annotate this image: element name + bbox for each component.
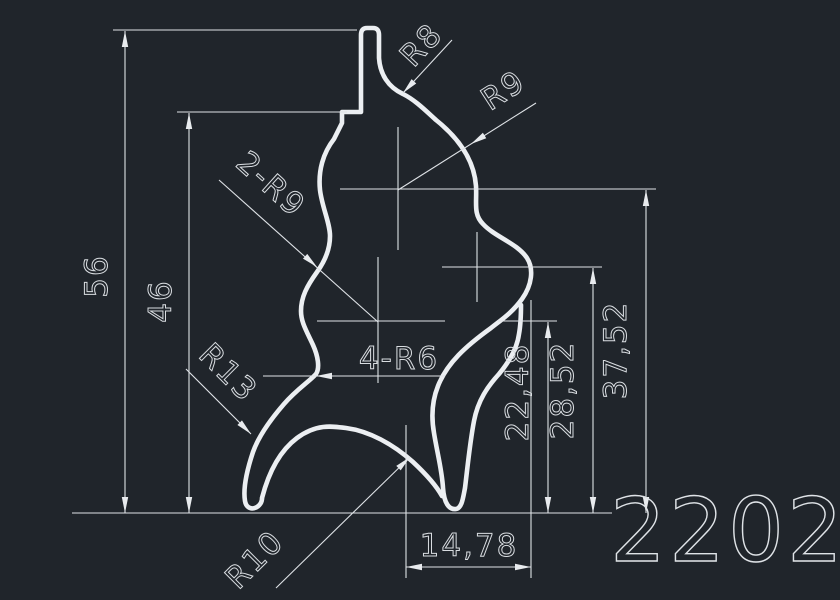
- arrow-37-52-top: [643, 190, 649, 206]
- leader-r8: R8: [393, 16, 452, 95]
- radius-label-r8: R8: [393, 16, 450, 74]
- leader-4-r6: 4-R6: [263, 341, 445, 379]
- radius-label-r13: R13: [192, 337, 265, 410]
- profile-arch: [262, 427, 442, 498]
- arrow-46-top: [186, 113, 192, 129]
- dim-label-37-52: 37,52: [598, 301, 634, 400]
- arrow-r13: [237, 420, 253, 436]
- leader-r13: R13: [186, 337, 264, 437]
- cad-drawing-canvas: 56 46 37,52 28,52 22,48 1: [0, 0, 840, 600]
- dim-label-56: 56: [79, 254, 115, 297]
- leader-2-r9: 2-R9: [219, 144, 378, 322]
- radius-label-r10: R10: [219, 524, 292, 597]
- leader-line-r10: [276, 457, 410, 588]
- arrow-r9: [469, 133, 486, 147]
- radius-label-4-r6: 4-R6: [359, 341, 439, 377]
- arrow-56-bottom: [122, 497, 128, 513]
- dim-label-14-78: 14,78: [420, 528, 519, 564]
- dim-label-28-52: 28,52: [545, 341, 581, 440]
- arrow-28-52-bottom: [590, 497, 596, 513]
- arrow-22-48-top: [545, 322, 551, 338]
- part-number: 2202: [610, 479, 840, 582]
- radius-label-2-r9: 2-R9: [229, 144, 313, 224]
- arrow-28-52-top: [590, 268, 596, 284]
- arrow-46-bottom: [186, 497, 192, 513]
- arrow-14-78-right: [515, 564, 531, 570]
- leader-r9: R9: [398, 63, 536, 190]
- drawing-svg: 56 46 37,52 28,52 22,48 1: [0, 0, 840, 600]
- dim-label-46: 46: [143, 279, 179, 322]
- leader-line-r9: [398, 103, 536, 190]
- arrow-22-48-bottom: [545, 497, 551, 513]
- arrow-56-top: [122, 31, 128, 47]
- arrow-14-78-left: [406, 564, 422, 570]
- radius-label-r9: R9: [475, 63, 533, 118]
